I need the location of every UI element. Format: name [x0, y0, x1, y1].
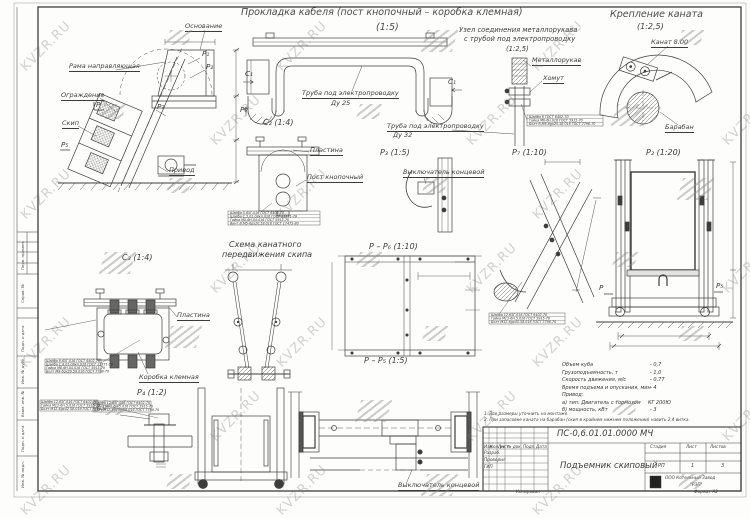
sheets-label: Листов — [710, 445, 726, 449]
strip-podp-data-1: Подп. и дата — [20, 325, 25, 352]
label-du25: Ду 25 — [331, 100, 350, 107]
rope-view-scale: (1:2,5) — [637, 23, 664, 31]
p7-joint-detail — [489, 159, 601, 324]
spec-value: - 0,7 — [650, 362, 661, 368]
label-metallorukav: Металлорукав — [532, 57, 581, 66]
strip-perv-primen: Перв. примен. — [20, 241, 25, 270]
pp6-frame-section — [332, 256, 482, 356]
company-line-2: "РЭП" — [690, 483, 702, 487]
label-skip: Скип — [62, 120, 79, 129]
doc-number: ПС-0,6.01.01.0000 МЧ — [557, 430, 653, 439]
sleeve-joint-detail — [452, 58, 603, 146]
label-baraban: Барабан — [665, 124, 694, 133]
rev-header-podp: Подп. — [523, 445, 536, 449]
marker-c1-left: C₁ — [245, 70, 253, 77]
label-vyklyuchatel-2: Выключатель концевой — [398, 482, 479, 491]
marker-p2: P₂ — [206, 63, 213, 70]
spec-label: Грузоподъемность, т — [562, 370, 618, 376]
label-kanat: Канат 8.00 — [651, 39, 688, 48]
drawing-sheet: Прокладка кабеля (пост кнопочный – короб… — [0, 0, 750, 500]
fastener-list-m6: Шайба 6 ГОСТ 6402-70Гайка М6-6Н.016 ГОСТ… — [529, 116, 595, 126]
marker-p-left-p2view: P — [599, 284, 603, 291]
rope-scheme — [195, 264, 292, 489]
scheme-title-1: Схема канатного — [229, 241, 301, 249]
label-korobka: Коробка клемная — [139, 374, 199, 383]
spec-label: б) мощность, кВт — [562, 407, 608, 413]
format-label: Формат А2 — [694, 490, 718, 494]
scheme-title-2: передвижения скипа — [222, 251, 312, 259]
marker-p5: P₅ — [61, 141, 68, 148]
spec-value: КГ 200Ю — [648, 400, 671, 406]
row-proveril: Проверил — [484, 458, 506, 462]
strip-sprav-no: Справ. № — [20, 284, 25, 303]
marker-p1: P₁ — [202, 50, 209, 57]
marker-p: P — [96, 101, 100, 108]
rope-fastening-detail — [600, 46, 712, 126]
spec-label: Скорость движения, м/с — [562, 377, 626, 383]
spec-value: - 3 — [650, 407, 657, 413]
strip-inv-podl: Инв. № подл. — [20, 461, 25, 488]
label-khomut: Хомут — [543, 75, 564, 84]
sleeve-view-title-2: с трубой под электропроводку — [464, 36, 575, 43]
spec-label: Привод: — [562, 392, 583, 398]
spec-label: Время подъема и опускания, мин — [562, 385, 651, 391]
marker-c3-view: C₃ (1:4) — [122, 254, 152, 262]
label-truba-25: Труба под электропроводку — [302, 90, 399, 99]
rev-header-data: Дата — [536, 445, 547, 449]
fastener-list-m12c: Шайба 12.65Г.016 ГОСТ 6402-70Гайка М12-6… — [94, 402, 159, 412]
spec-value: - 0,77 — [650, 377, 665, 383]
cable-view-title: Прокладка кабеля (пост кнопочный – короб… — [241, 8, 523, 18]
p2-frame-elevation — [596, 160, 736, 350]
rope-view-title: Крепление каната — [610, 10, 703, 20]
marker-p7-view: P₇ (1:10) — [512, 149, 547, 157]
spec-label: Объем куба — [562, 362, 593, 368]
row-gip: ГИП — [484, 465, 493, 469]
label-osnovanie: Основание — [185, 23, 222, 32]
strip-podp-data-2: Подп. и дата — [20, 425, 25, 452]
label-rama: Рама направляющая — [69, 63, 140, 72]
fastener-list-m12b: Шайба 12.65Г.016 ГОСТ 6402-70Гайка М12-6… — [491, 314, 556, 324]
marker-pp6-view: P – P₆ (1:10) — [369, 243, 418, 251]
label-post-knopochny: Пост кнопочный — [307, 174, 363, 183]
note-1: 1. Все размеры уточнить на монтаже. — [484, 412, 569, 416]
copied-label: Копировал — [516, 490, 540, 494]
marker-p5-right-p2view: P₅ — [716, 282, 723, 289]
company-line-1: ООО Котельный Завод — [665, 476, 715, 480]
fastener-list-m8: Шайба 8.65Г.016 ГОСТ 6402-70Шайба С.8.01… — [46, 360, 113, 374]
marker-p4-view: P₄ (1:2) — [137, 389, 167, 397]
marker-p6: P₆ — [240, 106, 247, 113]
marker-c2-view: C₂ (1:4) — [263, 119, 293, 127]
marker-pp5-view: P – P₅ (1:5) — [364, 357, 408, 365]
main-assembly-view — [58, 30, 239, 192]
marker-p2-view: P₂ (1:20) — [646, 149, 681, 157]
sleeve-view-title-1: Узел соединения металлорукава — [459, 27, 577, 34]
sleeve-view-scale: (1:2,5) — [506, 46, 529, 53]
sheet-label: Лист — [686, 445, 697, 449]
strip-inv-dubl: Инв. № дубл. — [20, 357, 25, 384]
marker-p7: P₇ — [157, 103, 164, 110]
label-vyklyuchatel-1: Выключатель концевой — [403, 169, 484, 178]
marker-p3-view: P₃ (1:5) — [380, 149, 410, 157]
cable-view-scale: (1:5) — [376, 23, 399, 33]
label-privod: Привод — [169, 167, 195, 176]
spec-label: а) тип: Двигатель с тормозом — [562, 400, 641, 406]
spec-value: - 4 — [650, 385, 657, 391]
rev-header-dok: № док. — [507, 445, 522, 449]
cable-routing-view — [243, 33, 462, 124]
sheet-value: 1 — [691, 464, 694, 469]
spec-value: - 1,0 — [650, 370, 661, 376]
pp5-beam-section — [288, 392, 480, 484]
row-razrab: Разраб. — [484, 451, 501, 455]
label-du32: Ду 32 — [393, 132, 412, 139]
marker-c1-right: C₁ — [448, 78, 456, 85]
stage-label: Стадия — [650, 445, 666, 449]
note-2: 2. При запасовке каната на барабан (скип… — [484, 418, 690, 422]
drawing-title: Подъемник скиповый — [560, 462, 657, 471]
stage-value: РП — [658, 464, 665, 469]
label-plastina-c2: Пластина — [310, 147, 343, 156]
sheets-value: 3 — [721, 464, 724, 469]
label-plastina-c3: Пластина — [177, 312, 210, 321]
fastener-list-m5: Шайба 5.65Г.016 ГОСТ 6402-70Шайба С.5.01… — [230, 212, 299, 226]
strip-vzam-inv: Взам. инв. № — [20, 391, 25, 417]
